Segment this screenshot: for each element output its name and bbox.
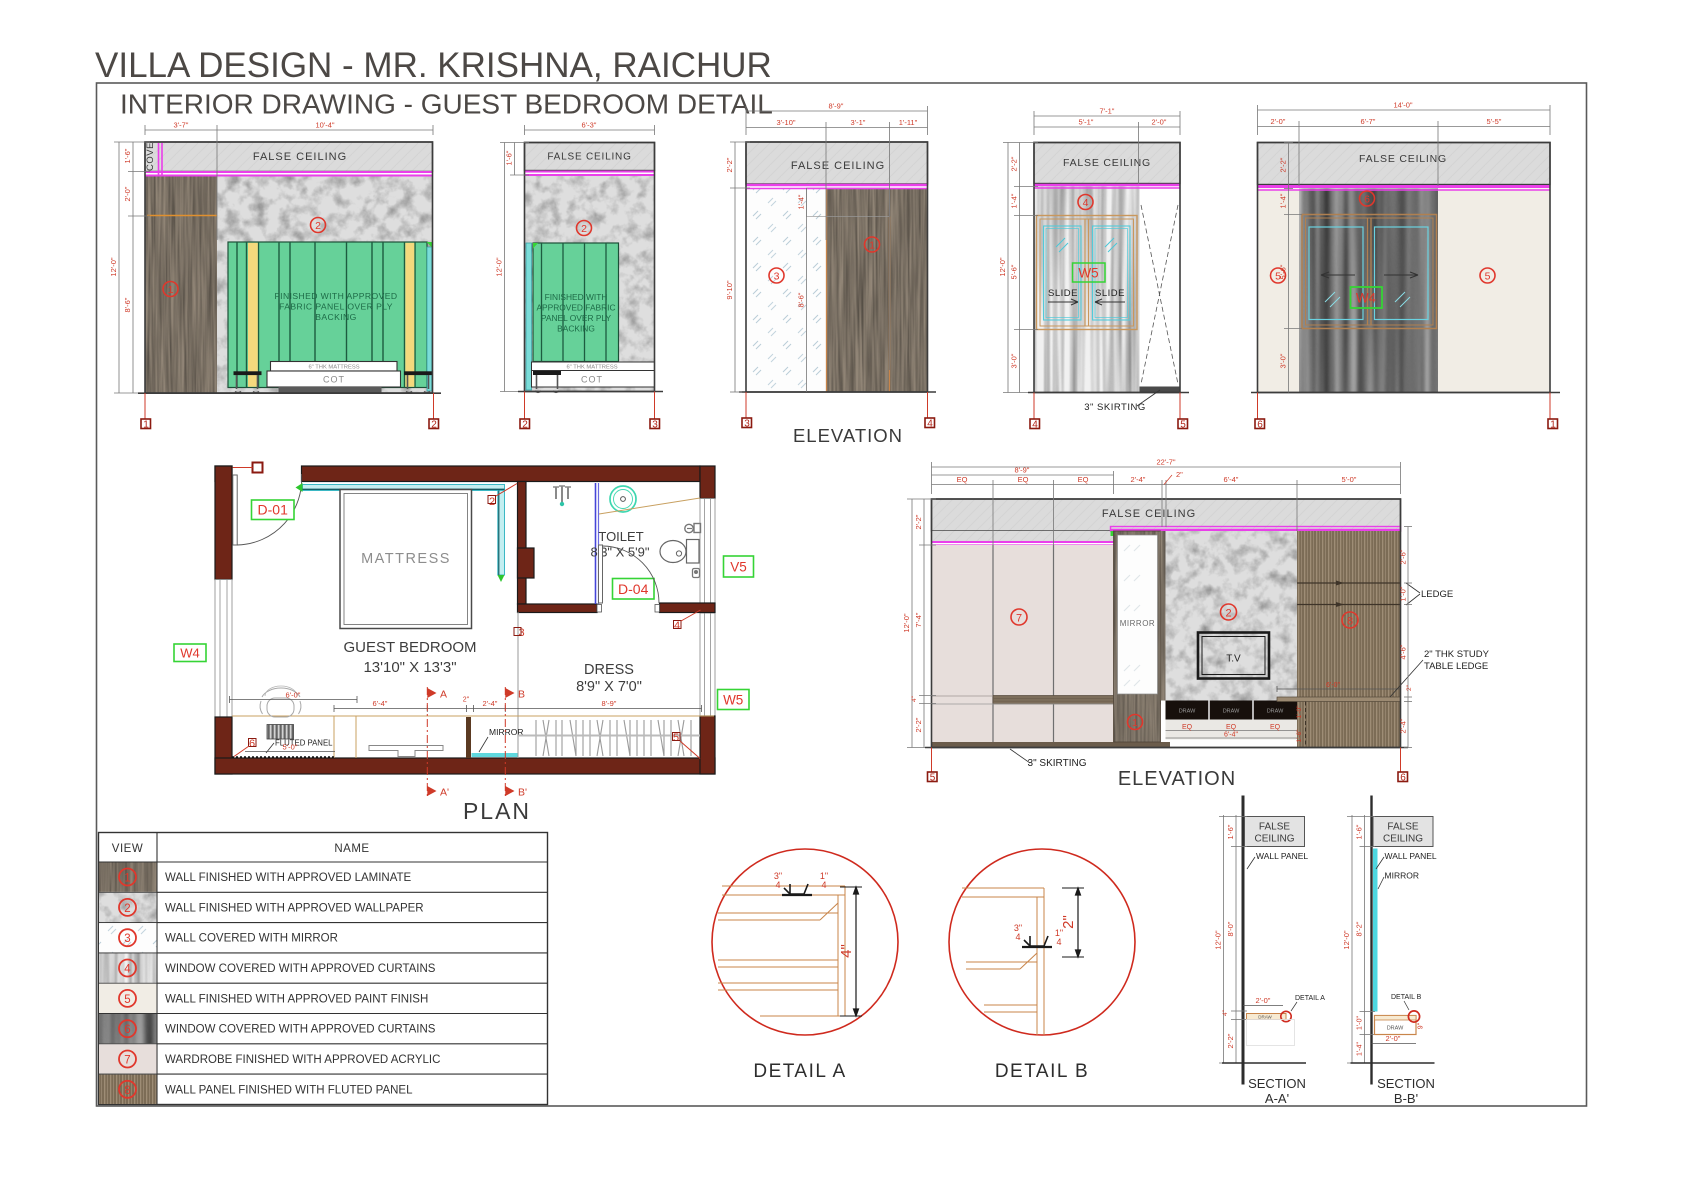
svg-text:3'-1": 3'-1" bbox=[851, 118, 866, 127]
svg-text:8'-9": 8'-9" bbox=[602, 699, 617, 708]
svg-text:COT: COT bbox=[323, 375, 345, 385]
svg-text:4: 4 bbox=[821, 880, 826, 890]
svg-text:FALSE: FALSE bbox=[1387, 822, 1418, 833]
svg-text:EQ: EQ bbox=[1270, 724, 1281, 731]
svg-text:1'-0": 1'-0" bbox=[1357, 1016, 1364, 1030]
svg-text:A: A bbox=[440, 689, 447, 701]
svg-text:2'-0": 2'-0" bbox=[1386, 1034, 1401, 1043]
svg-text:SLIDE: SLIDE bbox=[1095, 288, 1125, 299]
svg-text:3" SKIRTING: 3" SKIRTING bbox=[1028, 758, 1087, 769]
svg-text:PLAN: PLAN bbox=[463, 798, 531, 824]
svg-text:2: 2 bbox=[315, 220, 321, 232]
svg-text:FINISHED WITH: FINISHED WITH bbox=[545, 292, 608, 302]
svg-text:2: 2 bbox=[431, 420, 437, 431]
svg-text:3: 3 bbox=[124, 933, 130, 945]
svg-text:COT: COT bbox=[581, 375, 603, 385]
svg-text:2'-4": 2'-4" bbox=[1399, 718, 1408, 733]
svg-text:12'-0": 12'-0" bbox=[495, 257, 504, 276]
svg-text:A': A' bbox=[440, 787, 449, 799]
svg-text:8'9" X 7'0": 8'9" X 7'0" bbox=[576, 679, 642, 695]
svg-text:3'-10": 3'-10" bbox=[776, 118, 795, 127]
svg-text:6: 6 bbox=[1364, 194, 1370, 206]
svg-text:12'-0": 12'-0" bbox=[1214, 930, 1223, 949]
svg-text:4: 4 bbox=[1032, 420, 1038, 431]
svg-text:6'-0": 6'-0" bbox=[286, 691, 301, 700]
svg-text:6'-0": 6'-0" bbox=[1326, 682, 1340, 689]
svg-text:B': B' bbox=[518, 787, 527, 799]
svg-text:MATTRESS: MATTRESS bbox=[361, 551, 451, 567]
svg-text:CEILING: CEILING bbox=[1383, 834, 1423, 845]
svg-text:1'-11": 1'-11" bbox=[899, 118, 918, 127]
svg-text:WARDROBE FINISHED WITH APPROVE: WARDROBE FINISHED WITH APPROVED ACRYLIC bbox=[165, 1054, 440, 1066]
svg-text:1'-4": 1'-4" bbox=[1357, 1042, 1364, 1056]
svg-text:2": 2" bbox=[1060, 915, 1077, 929]
svg-text:4: 4 bbox=[775, 880, 780, 890]
svg-text:2'-4": 2'-4" bbox=[1131, 475, 1146, 484]
svg-text:2'-2": 2'-2" bbox=[1010, 156, 1019, 171]
svg-text:2'-0": 2'-0" bbox=[123, 186, 132, 201]
svg-text:FALSE CEILING: FALSE CEILING bbox=[1359, 153, 1447, 165]
svg-text:DRAW: DRAW bbox=[1223, 709, 1240, 715]
svg-text:2'-2": 2'-2" bbox=[914, 514, 923, 529]
svg-text:FALSE: FALSE bbox=[1259, 822, 1290, 833]
svg-text:4'-6": 4'-6" bbox=[1399, 644, 1408, 659]
svg-text:BACKING: BACKING bbox=[557, 324, 595, 334]
svg-text:1'-6": 1'-6" bbox=[505, 150, 514, 165]
svg-text:FABRIC PANEL OVER PLY: FABRIC PANEL OVER PLY bbox=[279, 302, 393, 312]
svg-text:WALL COVERED WITH MIRROR: WALL COVERED WITH MIRROR bbox=[165, 933, 338, 945]
svg-text:4: 4 bbox=[674, 620, 680, 632]
svg-text:DETAIL B: DETAIL B bbox=[1391, 994, 1422, 1001]
svg-text:DRAW: DRAW bbox=[1179, 709, 1196, 715]
svg-text:12'-0": 12'-0" bbox=[109, 257, 118, 276]
svg-text:5: 5 bbox=[1485, 271, 1491, 283]
svg-text:5: 5 bbox=[673, 732, 679, 744]
svg-text:INTERIOR DRAWING - GUEST BEDRO: INTERIOR DRAWING - GUEST BEDROOM DETAIL bbox=[120, 89, 773, 120]
svg-text:DETAIL A: DETAIL A bbox=[1295, 995, 1325, 1002]
svg-text:ELEVATION: ELEVATION bbox=[1118, 768, 1236, 790]
svg-text:5: 5 bbox=[124, 994, 130, 1006]
svg-text:3'-0": 3'-0" bbox=[1010, 353, 1019, 368]
svg-text:4: 4 bbox=[1015, 932, 1020, 942]
svg-text:NAME: NAME bbox=[334, 843, 369, 855]
svg-text:4": 4" bbox=[838, 944, 855, 958]
svg-text:1'-4": 1'-4" bbox=[797, 194, 806, 209]
svg-text:7'-4": 7'-4" bbox=[914, 612, 923, 627]
svg-text:9": 9" bbox=[1418, 1022, 1425, 1029]
svg-text:PANEL OVER PLY: PANEL OVER PLY bbox=[541, 313, 612, 323]
svg-text:CEILING: CEILING bbox=[1254, 834, 1294, 845]
svg-text:5'-5": 5'-5" bbox=[1487, 117, 1502, 126]
svg-text:13'10" X 13'3": 13'10" X 13'3" bbox=[363, 659, 456, 676]
svg-text:MIRROR: MIRROR bbox=[1385, 871, 1419, 881]
svg-text:1: 1 bbox=[1550, 420, 1556, 431]
svg-text:3'-7": 3'-7" bbox=[174, 121, 189, 130]
svg-text:14'-0": 14'-0" bbox=[1393, 101, 1412, 110]
svg-text:V5: V5 bbox=[730, 560, 747, 575]
svg-text:DRESS: DRESS bbox=[584, 662, 634, 678]
svg-text:DETAIL A: DETAIL A bbox=[753, 1061, 846, 1082]
svg-text:WALL PANEL: WALL PANEL bbox=[1256, 851, 1308, 861]
svg-text:4: 4 bbox=[124, 964, 131, 976]
svg-text:DRAW: DRAW bbox=[1387, 1026, 1404, 1032]
svg-text:VIEW: VIEW bbox=[112, 843, 143, 855]
svg-text:2'-2": 2'-2" bbox=[725, 157, 734, 172]
svg-text:1: 1 bbox=[124, 873, 130, 885]
svg-text:8: 8 bbox=[1347, 616, 1353, 628]
svg-text:5'-6": 5'-6" bbox=[1279, 264, 1288, 279]
svg-text:1: 1 bbox=[168, 284, 174, 296]
svg-text:3'-0": 3'-0" bbox=[1279, 353, 1288, 368]
svg-text:5: 5 bbox=[930, 773, 936, 784]
svg-text:BACKING: BACKING bbox=[315, 312, 356, 322]
svg-text:2'-6": 2'-6" bbox=[1399, 549, 1408, 564]
svg-text:8: 8 bbox=[124, 1085, 130, 1097]
svg-text:2" THK STUDY: 2" THK STUDY bbox=[1424, 649, 1490, 660]
svg-text:FALSE CEILING: FALSE CEILING bbox=[1102, 508, 1196, 520]
svg-text:2: 2 bbox=[489, 496, 495, 508]
svg-text:8'-2": 8'-2" bbox=[1355, 921, 1364, 936]
svg-text:1'-0": 1'-0" bbox=[1399, 586, 1408, 601]
svg-text:FALSE CEILING: FALSE CEILING bbox=[253, 151, 347, 163]
svg-text:9'-10": 9'-10" bbox=[725, 280, 734, 299]
svg-text:SLIDE: SLIDE bbox=[1048, 288, 1078, 299]
svg-text:1'-0": 1'-0" bbox=[1296, 705, 1303, 719]
svg-text:12'-0": 12'-0" bbox=[1342, 930, 1351, 949]
svg-text:VILLA DESIGN - MR. KRISHNA, RA: VILLA DESIGN - MR. KRISHNA, RAICHUR bbox=[95, 46, 772, 85]
svg-text:6" THK MATTRESS: 6" THK MATTRESS bbox=[566, 365, 617, 371]
svg-text:1: 1 bbox=[869, 240, 875, 252]
svg-text:5'-1": 5'-1" bbox=[1079, 118, 1094, 127]
svg-text:7: 7 bbox=[1016, 613, 1022, 625]
svg-text:2": 2" bbox=[463, 697, 470, 704]
svg-text:6'-4": 6'-4" bbox=[1224, 732, 1238, 739]
svg-text:W5: W5 bbox=[1078, 266, 1098, 281]
svg-text:6'-4": 6'-4" bbox=[1224, 475, 1239, 484]
svg-text:5'-0": 5'-0" bbox=[283, 743, 298, 752]
svg-text:1'-6": 1'-6" bbox=[1296, 729, 1303, 743]
svg-text:TOILET: TOILET bbox=[598, 529, 643, 544]
svg-text:4": 4" bbox=[1222, 1009, 1229, 1016]
svg-text:6: 6 bbox=[124, 1024, 130, 1036]
svg-text:10'-4": 10'-4" bbox=[315, 121, 334, 130]
svg-text:WALL PANEL FINISHED WITH FLUTE: WALL PANEL FINISHED WITH FLUTED PANEL bbox=[165, 1084, 413, 1096]
svg-text:TABLE LEDGE: TABLE LEDGE bbox=[1424, 661, 1488, 672]
svg-text:2'-4": 2'-4" bbox=[483, 699, 498, 708]
svg-text:6: 6 bbox=[1400, 773, 1406, 784]
svg-text:2": 2" bbox=[1406, 684, 1413, 691]
svg-text:7'-1": 7'-1" bbox=[1100, 107, 1115, 116]
svg-text:4: 4 bbox=[927, 419, 933, 430]
svg-text:3: 3 bbox=[744, 419, 750, 430]
svg-text:8'-9": 8'-9" bbox=[829, 102, 844, 111]
svg-text:SECTION: SECTION bbox=[1377, 1076, 1435, 1091]
svg-text:W4: W4 bbox=[1356, 291, 1377, 306]
svg-text:6'-7": 6'-7" bbox=[1361, 117, 1376, 126]
svg-text:7: 7 bbox=[124, 1055, 130, 1067]
svg-text:6'-4": 6'-4" bbox=[373, 699, 388, 708]
svg-text:2": 2" bbox=[1176, 470, 1183, 479]
svg-text:6" THK MATTRESS: 6" THK MATTRESS bbox=[308, 365, 359, 371]
svg-text:6: 6 bbox=[1257, 420, 1263, 431]
svg-text:SECTION: SECTION bbox=[1248, 1076, 1306, 1091]
svg-text:1'-4": 1'-4" bbox=[1010, 193, 1019, 208]
svg-text:T.V: T.V bbox=[1226, 654, 1241, 665]
svg-text:DETAIL B: DETAIL B bbox=[995, 1061, 1089, 1082]
svg-text:FALSE CEILING: FALSE CEILING bbox=[1063, 157, 1151, 169]
svg-text:6'-3": 6'-3" bbox=[582, 121, 597, 130]
svg-text:8'-6": 8'-6" bbox=[797, 292, 806, 307]
svg-text:2'-2": 2'-2" bbox=[914, 717, 923, 732]
svg-text:2'-0": 2'-0" bbox=[1271, 117, 1286, 126]
svg-text:WINDOW COVERED WITH APPROVED C: WINDOW COVERED WITH APPROVED CURTAINS bbox=[165, 1024, 436, 1036]
svg-text:4: 4 bbox=[1083, 197, 1089, 209]
svg-text:1'-6": 1'-6" bbox=[123, 148, 132, 163]
svg-text:2: 2 bbox=[124, 903, 130, 915]
svg-text:1: 1 bbox=[1132, 717, 1138, 729]
svg-text:3" SKIRTING: 3" SKIRTING bbox=[1084, 402, 1146, 413]
svg-text:3: 3 bbox=[774, 271, 780, 283]
svg-text:2'-0": 2'-0" bbox=[1256, 996, 1271, 1005]
svg-text:DRAW: DRAW bbox=[1258, 1015, 1272, 1020]
svg-text:2: 2 bbox=[581, 223, 587, 235]
svg-text:ELEVATION: ELEVATION bbox=[793, 425, 903, 446]
svg-text:22'-7": 22'-7" bbox=[1156, 458, 1175, 467]
svg-text:APPROVED FABRIC: APPROVED FABRIC bbox=[536, 303, 615, 313]
svg-text:EQ: EQ bbox=[1018, 475, 1029, 484]
svg-text:5'-6": 5'-6" bbox=[1010, 264, 1019, 279]
svg-text:B-B': B-B' bbox=[1394, 1091, 1418, 1106]
svg-text:WINDOW COVERED WITH APPROVED C: WINDOW COVERED WITH APPROVED CURTAINS bbox=[165, 963, 436, 975]
svg-text:1'-6": 1'-6" bbox=[1226, 824, 1235, 839]
svg-text:WALL PANEL: WALL PANEL bbox=[1385, 851, 1437, 861]
svg-text:COVE: COVE bbox=[145, 142, 156, 171]
svg-text:LEDGE: LEDGE bbox=[1421, 589, 1453, 600]
svg-text:EQ: EQ bbox=[1078, 475, 1089, 484]
svg-text:8'-0": 8'-0" bbox=[1226, 921, 1235, 936]
svg-text:12'-0": 12'-0" bbox=[902, 613, 911, 632]
svg-text:1'-4": 1'-4" bbox=[1279, 193, 1288, 208]
svg-text:B: B bbox=[518, 689, 525, 701]
svg-text:W5: W5 bbox=[723, 693, 743, 708]
svg-text:8'-6": 8'-6" bbox=[123, 297, 132, 312]
svg-text:4: 4 bbox=[1056, 937, 1061, 947]
svg-text:FINISHED WITH APPROVED: FINISHED WITH APPROVED bbox=[275, 291, 398, 301]
svg-text:FALSE CEILING: FALSE CEILING bbox=[791, 160, 885, 172]
svg-text:2'-2": 2'-2" bbox=[1279, 157, 1288, 172]
svg-text:EQ: EQ bbox=[1182, 724, 1193, 731]
svg-text:EQ: EQ bbox=[1226, 724, 1237, 731]
svg-text:2: 2 bbox=[1225, 608, 1231, 620]
svg-text:WALL FINISHED WITH APPROVED LA: WALL FINISHED WITH APPROVED LAMINATE bbox=[165, 872, 412, 884]
svg-text:4": 4" bbox=[911, 695, 918, 702]
svg-text:12'-0": 12'-0" bbox=[998, 257, 1007, 276]
svg-text:GUEST BEDROOM: GUEST BEDROOM bbox=[343, 639, 476, 656]
svg-text:EQ: EQ bbox=[957, 475, 968, 484]
svg-text:8'-9": 8'-9" bbox=[1015, 466, 1030, 475]
svg-text:6: 6 bbox=[249, 738, 255, 750]
svg-text:D-04: D-04 bbox=[618, 581, 649, 597]
svg-text:WALL FINISHED WITH APPROVED WA: WALL FINISHED WITH APPROVED WALLPAPER bbox=[165, 902, 424, 914]
svg-text:1'-6": 1'-6" bbox=[1355, 824, 1364, 839]
svg-text:DRAW: DRAW bbox=[1267, 709, 1284, 715]
svg-text:2: 2 bbox=[522, 420, 528, 431]
svg-text:3: 3 bbox=[652, 420, 658, 431]
svg-text:D-01: D-01 bbox=[258, 502, 289, 518]
svg-text:MIRROR: MIRROR bbox=[1120, 619, 1155, 628]
svg-text:5'-0": 5'-0" bbox=[1342, 475, 1357, 484]
svg-text:2'-2": 2'-2" bbox=[1226, 1033, 1235, 1048]
svg-text:FALSE CEILING: FALSE CEILING bbox=[547, 152, 631, 163]
svg-text:A-A': A-A' bbox=[1265, 1091, 1289, 1106]
svg-text:5: 5 bbox=[1180, 420, 1186, 431]
svg-text:W4: W4 bbox=[180, 646, 200, 661]
svg-text:1: 1 bbox=[143, 420, 149, 431]
svg-text:2'-0": 2'-0" bbox=[1152, 118, 1167, 127]
svg-text:WALL FINISHED WITH APPROVED PA: WALL FINISHED WITH APPROVED PAINT FINISH bbox=[165, 993, 428, 1005]
